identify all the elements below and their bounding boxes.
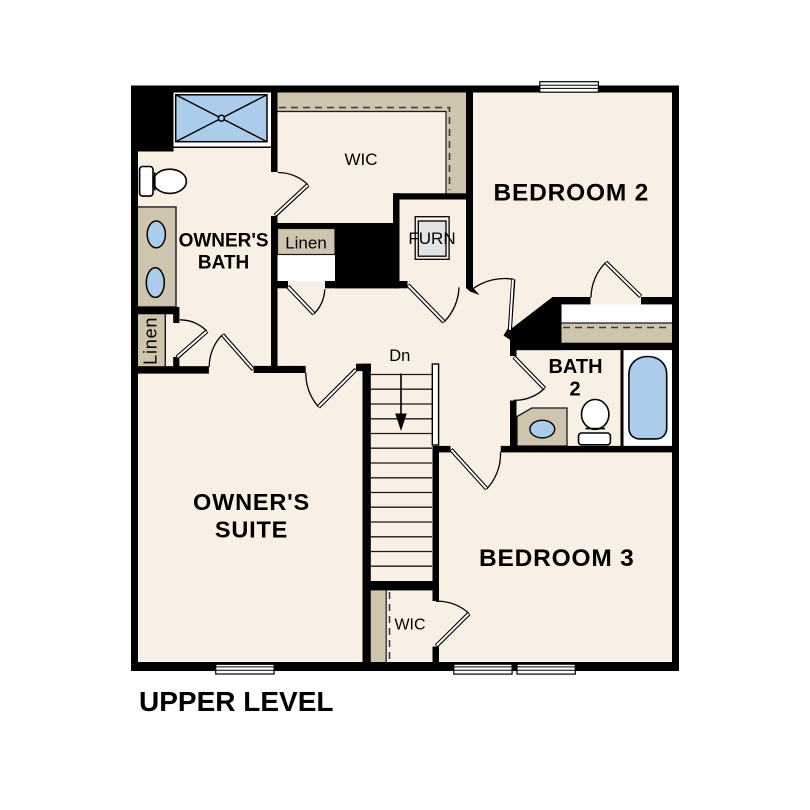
svg-text:BEDROOM 2: BEDROOM 2 bbox=[494, 180, 650, 207]
svg-text:SUITE: SUITE bbox=[215, 517, 288, 543]
svg-text:OWNER'S: OWNER'S bbox=[179, 231, 269, 252]
svg-text:BATH: BATH bbox=[548, 356, 602, 378]
svg-text:OWNER'S: OWNER'S bbox=[193, 489, 310, 515]
svg-text:2: 2 bbox=[569, 379, 580, 401]
svg-text:WIC: WIC bbox=[344, 150, 377, 169]
svg-text:BEDROOM 3: BEDROOM 3 bbox=[479, 545, 635, 572]
svg-text:BATH: BATH bbox=[198, 252, 249, 273]
svg-text:Linen: Linen bbox=[141, 317, 161, 365]
svg-text:Dn: Dn bbox=[389, 347, 410, 365]
svg-text:UPPER LEVEL: UPPER LEVEL bbox=[139, 686, 333, 717]
svg-text:WIC: WIC bbox=[394, 617, 425, 634]
svg-text:FURN: FURN bbox=[408, 229, 455, 248]
svg-text:Linen: Linen bbox=[285, 234, 327, 253]
